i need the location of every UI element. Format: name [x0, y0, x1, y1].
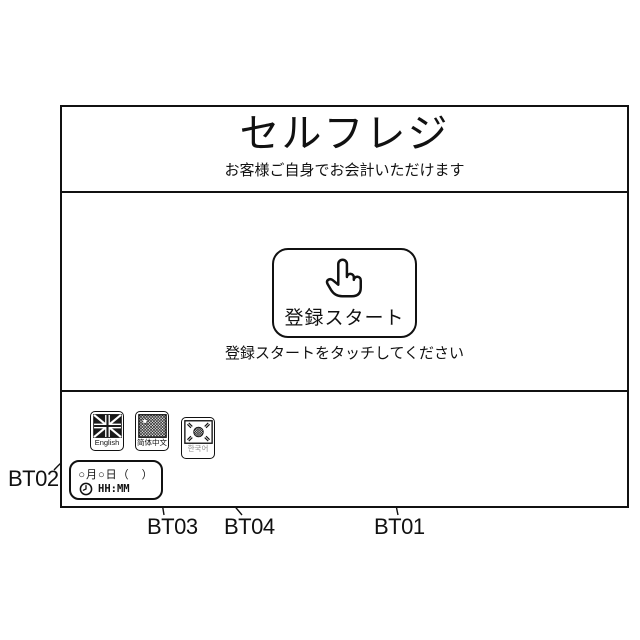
page-title: セルフレジ	[60, 112, 629, 156]
callout-label-bt02: BT02	[8, 466, 59, 492]
callout-label-bt01: BT01	[374, 514, 425, 540]
language-button-korean[interactable]: 한국어	[181, 417, 215, 459]
datetime-display: ○月○日（ ） HH:MM	[69, 460, 163, 500]
registration-start-button[interactable]: 登録スタート	[272, 248, 417, 338]
header-divider-line	[62, 191, 627, 193]
figure-canvas: セルフレジ お客様ご自身でお会計いただけます 登録スタート 登録スタートをタッチ…	[0, 0, 640, 640]
time-placeholder: HH:MM	[98, 483, 130, 495]
uk-flag-icon	[93, 414, 122, 438]
date-placeholder: ○月○日（ ）	[71, 466, 161, 482]
page-subtitle: お客様ご自身でお会計いただけます	[60, 159, 629, 180]
china-flag-icon	[138, 414, 167, 438]
clock-icon	[79, 482, 93, 496]
footer-divider-line	[62, 390, 627, 392]
language-button-label: 한국어	[188, 444, 209, 453]
language-button-label: 简体中文	[137, 438, 167, 447]
callout-label-bt03: BT03	[147, 514, 198, 540]
language-button-chinese[interactable]: 简体中文	[135, 411, 169, 451]
language-button-english[interactable]: English	[90, 411, 124, 451]
korea-flag-icon	[184, 420, 213, 444]
touch-instruction-text: 登録スタートをタッチしてください	[60, 342, 629, 363]
start-button-label: 登録スタート	[274, 303, 415, 330]
callout-label-bt04: BT04	[224, 514, 275, 540]
language-button-label: English	[95, 438, 120, 447]
pointing-hand-icon	[320, 254, 370, 307]
